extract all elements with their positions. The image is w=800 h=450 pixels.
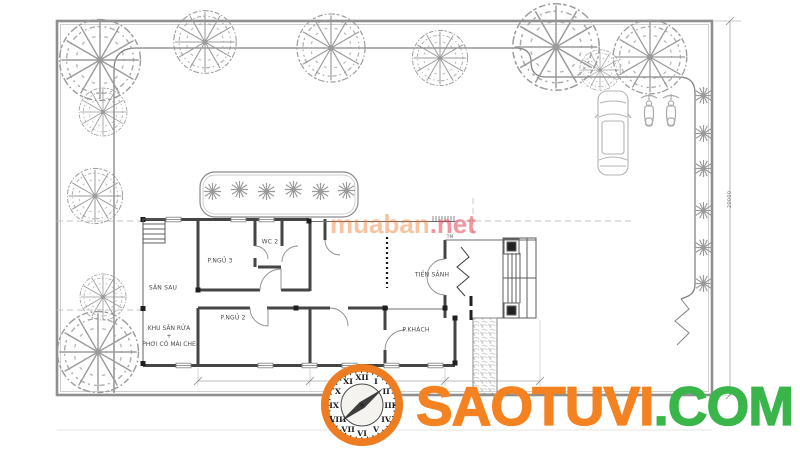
clock-numeral: II bbox=[382, 387, 390, 396]
room-label-p-khach: P.KHÁCH bbox=[402, 326, 429, 334]
clock-numeral: IX bbox=[329, 401, 340, 410]
clock-numeral: V bbox=[372, 425, 380, 434]
tree-icon bbox=[580, 50, 620, 90]
plant-icon bbox=[338, 182, 355, 199]
fence-break-line bbox=[675, 299, 689, 345]
site-plan-page: SÂN SAU P.NGỦ 3 WC 2 P.NGỦ 2 KHU SÂN RỬA… bbox=[0, 0, 800, 450]
plant-icon bbox=[695, 202, 712, 219]
tree-icon bbox=[613, 20, 687, 94]
right-hedge-plants bbox=[695, 87, 712, 292]
plant-icon bbox=[695, 275, 712, 292]
clock-numeral: I bbox=[374, 377, 378, 386]
room-label-san-sau: SÂN SAU bbox=[149, 284, 177, 292]
tree-icon bbox=[513, 4, 599, 90]
tree-icon bbox=[67, 168, 122, 223]
site-logo: XIIIIIIIIIVVVIVIIVIIIIXXXI SAOTUVI.COM bbox=[317, 362, 793, 450]
plant-icon bbox=[231, 181, 248, 198]
logo-text: SAOTUVI.COM bbox=[416, 362, 793, 450]
clock-numeral: IV bbox=[381, 415, 392, 424]
clock-numeral: VII bbox=[340, 425, 355, 434]
plant-icon bbox=[695, 125, 712, 142]
motorbike-icon bbox=[663, 94, 679, 126]
plant-icon bbox=[204, 183, 221, 200]
watermark-name: muaban bbox=[330, 209, 430, 239]
tree-icon bbox=[58, 312, 139, 393]
room-label-khu-san-rua: KHU SÂN RỬA + PHƠI CÓ MÁI CHE bbox=[142, 325, 196, 349]
plant-icon bbox=[695, 160, 712, 177]
plant-icon bbox=[695, 87, 712, 104]
tree-icon bbox=[297, 14, 365, 82]
clock-numeral: XI bbox=[343, 377, 353, 386]
tree-icon bbox=[79, 88, 127, 136]
logo-brand: SAOTUVI bbox=[416, 375, 653, 437]
motorbike-icon bbox=[641, 94, 657, 126]
watermark: muaban.net bbox=[330, 209, 476, 240]
plant-icon bbox=[312, 183, 329, 200]
car-icon bbox=[595, 91, 631, 175]
watermark-tld: .net bbox=[430, 209, 476, 239]
tree-icon bbox=[174, 11, 237, 74]
clock-numeral: X bbox=[335, 387, 342, 396]
clock-logo-icon: XIIIIIIIIIVVVIVIIVIIIIXXXI bbox=[317, 362, 407, 450]
room-label-khu-san-rua-plus: + bbox=[142, 333, 196, 341]
stairs-icon bbox=[143, 219, 165, 243]
room-label-p-ngu-3: P.NGỦ 3 bbox=[207, 257, 232, 265]
tree-icon bbox=[412, 30, 467, 85]
clock-numeral: VI bbox=[356, 429, 367, 438]
room-label-p-ngu-2: P.NGỦ 2 bbox=[220, 314, 245, 322]
plant-icon bbox=[258, 183, 275, 200]
clock-numeral: III bbox=[384, 401, 395, 410]
plant-icon bbox=[285, 181, 302, 198]
room-label-khu-san-rua-line1: KHU SÂN RỬA bbox=[142, 325, 196, 333]
room-label-wc-2: WC 2 bbox=[262, 238, 279, 246]
clock-numeral: XII bbox=[355, 373, 369, 382]
porch-steps bbox=[503, 238, 536, 318]
room-label-tien-sanh: TIỀN SẢNH bbox=[415, 271, 449, 279]
room-label-phoi-co-mai-che: PHƠI CÓ MÁI CHE bbox=[142, 341, 196, 349]
entry-zigzag bbox=[457, 247, 469, 296]
dimension-label-right: 20000 bbox=[727, 191, 733, 208]
plant-icon bbox=[695, 239, 712, 256]
logo-tld: .COM bbox=[653, 375, 793, 437]
